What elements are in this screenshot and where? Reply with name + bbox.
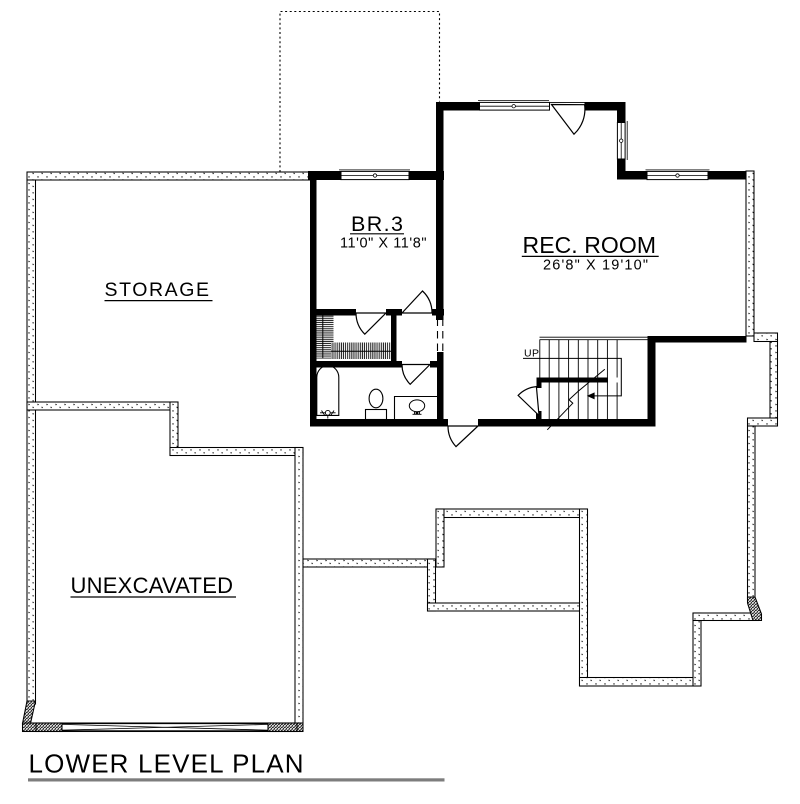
- svg-text:UP: UP: [524, 347, 539, 359]
- svg-text:UNEXCAVATED: UNEXCAVATED: [71, 573, 235, 598]
- svg-text:BR.3: BR.3: [351, 212, 403, 236]
- svg-text:STORAGE: STORAGE: [105, 279, 212, 301]
- svg-text:REC. ROOM: REC. ROOM: [523, 232, 657, 258]
- svg-text:26'8" X 19'10": 26'8" X 19'10": [543, 258, 648, 274]
- svg-text:LOWER LEVEL PLAN: LOWER LEVEL PLAN: [29, 749, 307, 779]
- svg-text:11'0" X 11'8": 11'0" X 11'8": [340, 236, 427, 252]
